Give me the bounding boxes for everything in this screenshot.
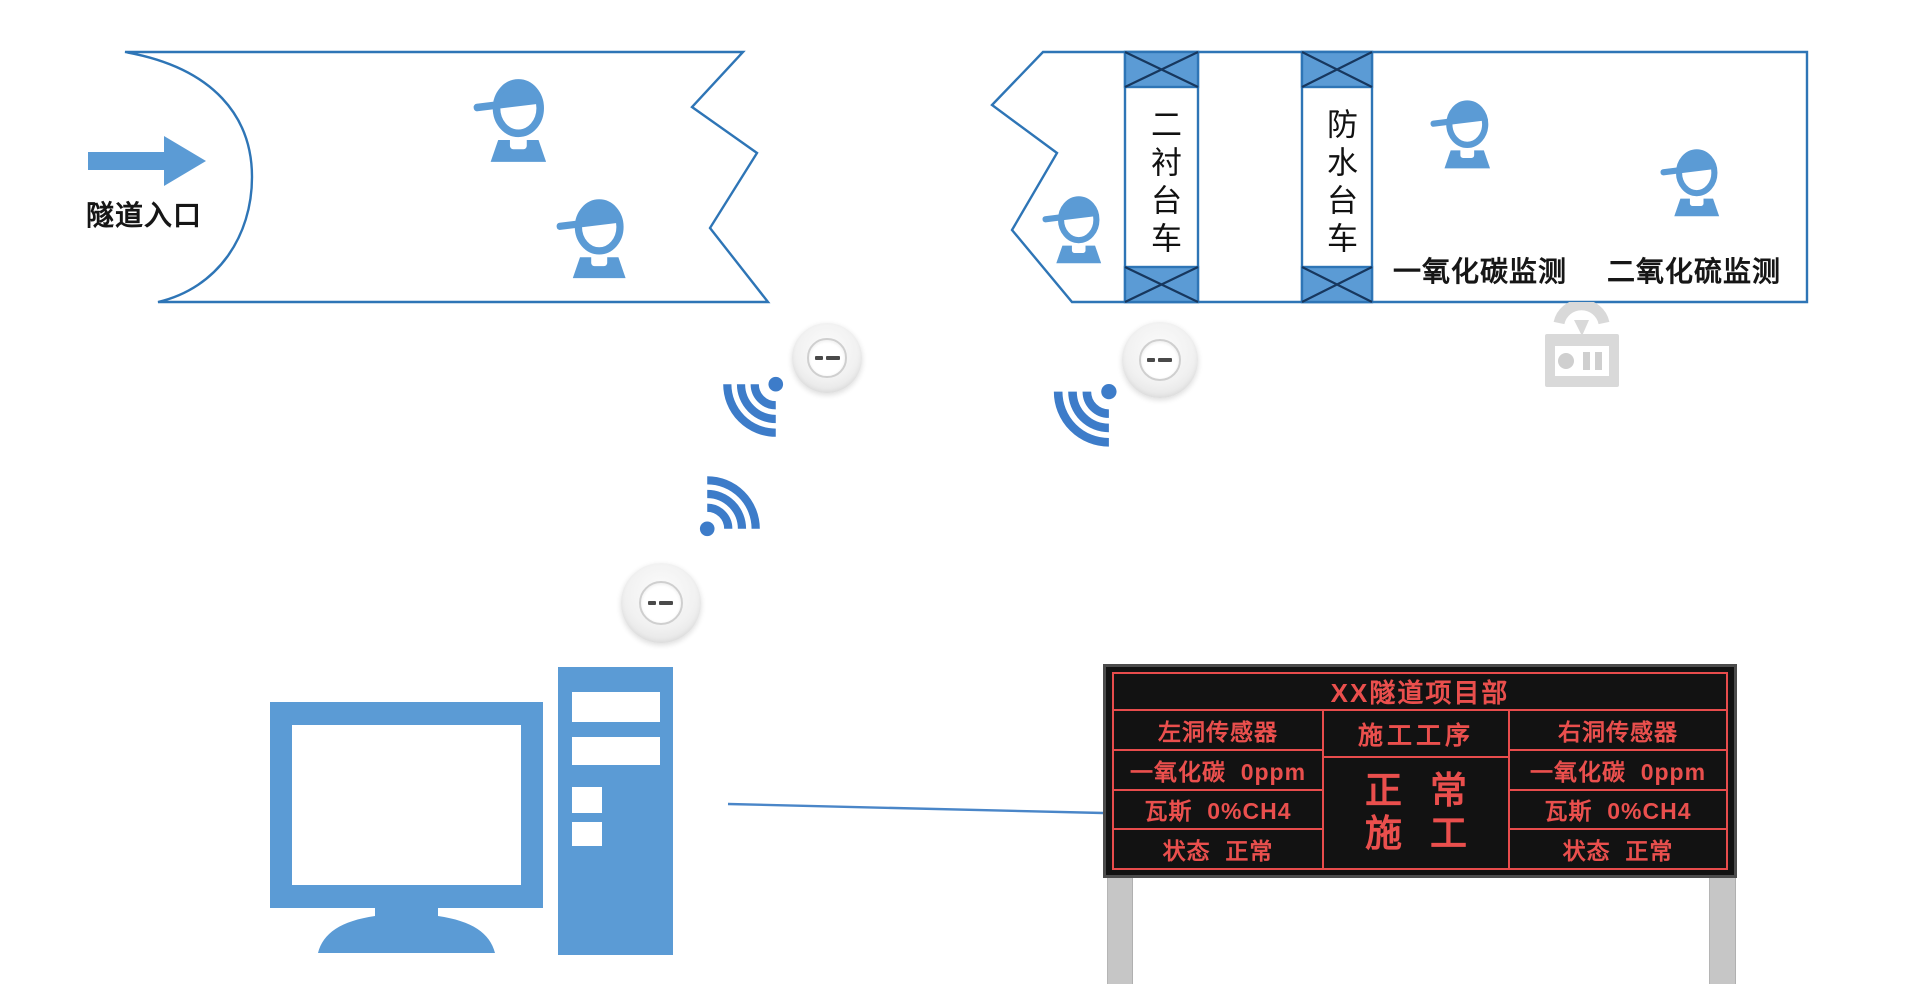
led-display-board: XX隧道项目部 左洞传感器 一氧化碳 0ppm 瓦斯 0%CH4 状态 正常 施… [1103,664,1737,878]
left-status-row: 状态 正常 [1114,830,1322,868]
left-column-header: 左洞传感器 [1114,711,1322,751]
flow-direction-arrow-icon [88,136,208,188]
worker-icon [473,64,557,164]
right-column-header: 右洞传感器 [1510,711,1726,751]
procedure-status: 正常 施工 [1324,758,1508,868]
ap-face [807,338,846,377]
right-sensor-column: 右洞传感器 一氧化碳 0ppm 瓦斯 0%CH4 状态 正常 [1510,711,1726,868]
waterproof-trolley-label: 防水台车 [1317,108,1362,260]
right-co-row: 一氧化碳 0ppm [1510,751,1726,791]
lining-trolley-label: 二衬台车 [1141,108,1186,260]
led-board-panel: XX隧道项目部 左洞传感器 一氧化碳 0ppm 瓦斯 0%CH4 状态 正常 施… [1112,672,1728,870]
computer-to-board-line [728,804,1103,813]
right-status-row: 状态 正常 [1510,830,1726,868]
board-columns: 左洞传感器 一氧化碳 0ppm 瓦斯 0%CH4 状态 正常 施工工序 正常 施… [1114,711,1726,868]
co-monitor-label: 一氧化碳监测 [1393,250,1567,290]
worker-icon [1430,87,1499,171]
worker-icon [1660,137,1728,218]
left-gas-row: 瓦斯 0%CH4 [1114,791,1322,831]
procedure-header: 施工工序 [1324,711,1508,758]
status-line-2: 施工 [1365,814,1467,855]
left-co-row: 一氧化碳 0ppm [1114,751,1322,791]
wireless-ap-icon [1122,322,1198,398]
wireless-ap-icon [792,323,862,393]
worker-icon [556,184,636,281]
work-procedure-column: 施工工序 正常 施工 [1324,711,1510,868]
wifi-signal-icon [1048,383,1120,450]
left-tunnel-outline [125,52,768,302]
ap-face [1139,339,1182,382]
status-text-normal: 正常 [1365,771,1467,812]
so2-monitor-label: 二氧化硫监测 [1607,250,1781,290]
monitoring-computer-icon [268,665,678,957]
tunnel-entrance-label: 隧道入口 [86,194,202,234]
wireless-ap-icon [621,563,701,643]
status-text-construction: 施工 [1365,814,1467,855]
left-sensor-column: 左洞传感器 一氧化碳 0ppm 瓦斯 0%CH4 状态 正常 [1114,711,1324,868]
wifi-signal-icon [716,376,788,440]
worker-icon [1042,182,1110,267]
board-leg [1709,876,1736,984]
ap-face [639,581,684,626]
board-leg [1107,876,1133,984]
right-gas-row: 瓦斯 0%CH4 [1510,791,1726,831]
tunnel-monitoring-diagram: 隧道入口 二衬台车 防水台车 一氧化碳监测 二氧化硫监测 [0,0,1920,996]
board-title: XX隧道项目部 [1114,674,1726,711]
status-line-1: 正常 [1365,771,1467,812]
wireless-sensor-icon [1543,302,1621,390]
wifi-signal-icon [698,473,764,537]
